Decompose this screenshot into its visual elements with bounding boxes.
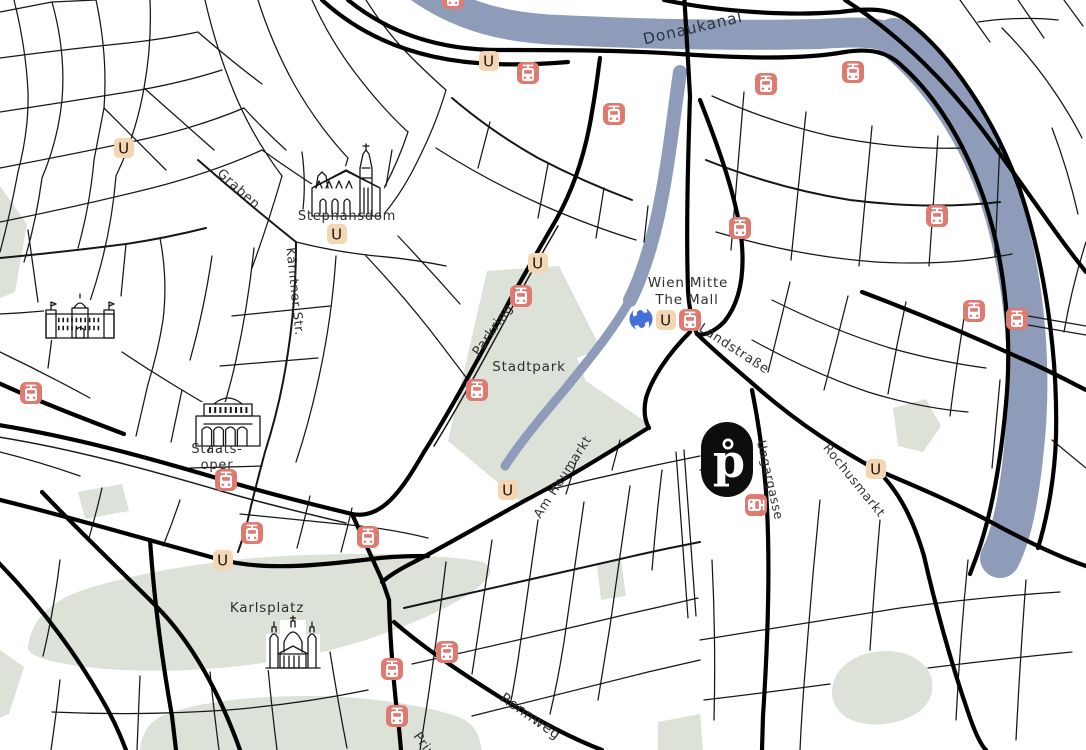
street <box>398 236 460 304</box>
hotel-pin[interactable]: p <box>701 422 753 497</box>
street <box>312 0 408 132</box>
street <box>144 88 214 150</box>
tram-stop-marker[interactable] <box>215 469 237 491</box>
place-label: Stadtpark <box>492 359 566 375</box>
street <box>706 160 1000 206</box>
street <box>510 520 538 706</box>
street <box>163 500 180 546</box>
ubahn-station-marker[interactable]: U <box>114 138 134 158</box>
street <box>0 70 222 112</box>
street <box>94 0 105 160</box>
vienna-map[interactable]: DonaukanalGrabenKärntner Str.Stephansdom… <box>0 0 1086 750</box>
street <box>1052 128 1078 214</box>
street <box>472 540 492 674</box>
street <box>244 108 286 150</box>
staatsoper-building <box>196 398 260 446</box>
ubahn-station-marker[interactable]: U <box>479 51 499 71</box>
tram-stop-marker[interactable] <box>926 205 948 227</box>
street <box>538 164 548 218</box>
street <box>791 112 806 260</box>
park-patch <box>597 560 626 600</box>
ubahn-station-marker[interactable]: U <box>528 253 548 273</box>
tram-stop-marker[interactable] <box>510 285 532 307</box>
tram-stop-marker[interactable] <box>20 382 42 404</box>
tram-stop-marker[interactable] <box>963 300 985 322</box>
park-patch <box>0 186 27 298</box>
tram-stop-marker[interactable] <box>755 73 777 95</box>
street <box>652 470 662 570</box>
place-label: The Mall <box>654 292 718 308</box>
tram-stop-marker[interactable] <box>241 522 263 544</box>
street <box>220 358 318 366</box>
street <box>704 684 830 700</box>
street <box>121 244 126 296</box>
street <box>0 452 80 476</box>
ubahn-letter: U <box>483 53 495 71</box>
tram-stop-marker[interactable] <box>729 217 751 239</box>
ubahn-letter: U <box>502 482 514 500</box>
ubahn-letter: U <box>532 255 544 273</box>
ubahn-station-marker[interactable]: U <box>327 224 347 244</box>
tram-stop-marker[interactable] <box>381 658 403 680</box>
main-road <box>645 332 690 428</box>
park-patch <box>893 399 941 452</box>
street <box>252 176 282 268</box>
place-label: Karlsplatz <box>230 600 304 616</box>
street <box>171 390 182 442</box>
street <box>978 18 1058 22</box>
ubahn-station-marker[interactable]: U <box>498 480 518 500</box>
street <box>929 136 938 266</box>
street <box>28 230 38 302</box>
sbahn-station-marker[interactable] <box>630 308 653 331</box>
street <box>596 188 604 238</box>
street <box>386 150 392 186</box>
street <box>772 300 986 368</box>
street <box>262 150 318 188</box>
street <box>258 0 348 158</box>
street <box>148 238 165 384</box>
tram-stop-marker[interactable] <box>842 61 864 83</box>
place-label: Stephansdom <box>298 209 396 224</box>
street <box>190 256 212 360</box>
street <box>198 32 262 84</box>
place-label: Staats- <box>191 442 242 457</box>
sbahn-icon <box>630 308 653 331</box>
street-label: Graben <box>214 166 263 212</box>
street <box>870 520 880 650</box>
street <box>700 592 1060 640</box>
street <box>238 242 296 552</box>
street <box>859 126 872 266</box>
tram-stop-marker[interactable] <box>517 62 539 84</box>
street <box>24 2 63 262</box>
park-patch <box>0 650 24 718</box>
ubahn-letter: U <box>660 312 672 330</box>
tram-stop-marker[interactable] <box>1006 308 1028 330</box>
street <box>80 0 150 328</box>
street-label: Kärntner Str. <box>283 247 307 337</box>
river-donaukanal-bend <box>894 38 1027 558</box>
street <box>436 148 636 240</box>
ring-rail-line <box>0 436 346 523</box>
palace-building <box>44 294 116 340</box>
tram-stop-marker[interactable] <box>357 526 379 548</box>
street <box>800 500 820 750</box>
park-patch <box>832 651 932 724</box>
place-label: Wien Mitte <box>648 275 728 291</box>
street-label: Rochusmarkt <box>820 440 889 520</box>
tram-stop-marker[interactable] <box>679 309 701 331</box>
ubahn-letter: U <box>118 140 130 158</box>
street <box>51 680 60 750</box>
street <box>384 90 446 214</box>
street <box>712 96 962 148</box>
street <box>824 296 848 390</box>
main-road <box>0 380 124 434</box>
ubahn-letter: U <box>331 226 343 244</box>
street <box>1002 28 1082 138</box>
map-canvas[interactable]: DonaukanalGrabenKärntner Str.Stephansdom… <box>0 0 1086 750</box>
ubahn-station-marker[interactable]: U <box>866 459 886 479</box>
hotel-pin-letter: p <box>713 434 745 488</box>
street <box>1016 580 1026 740</box>
tram-stop-marker[interactable] <box>442 0 464 9</box>
park-patch <box>78 484 129 519</box>
ubahn-letter: U <box>217 552 229 570</box>
karlskirche-building <box>266 616 320 670</box>
street <box>302 152 304 209</box>
tram-icon <box>447 0 459 6</box>
ubahn-station-marker[interactable]: U <box>213 550 233 570</box>
street <box>1064 0 1083 26</box>
tram-stop-marker[interactable] <box>466 379 488 401</box>
street <box>136 384 148 436</box>
street <box>0 32 198 58</box>
ubahn-letter: U <box>870 461 882 479</box>
tram-stop-marker[interactable] <box>603 103 625 125</box>
street <box>205 0 282 176</box>
tram-stop-marker[interactable] <box>436 641 458 663</box>
street <box>478 122 490 168</box>
river-wienfluss-upper <box>630 72 680 300</box>
street <box>716 232 1012 263</box>
street <box>366 256 468 380</box>
ubahn-station-marker[interactable]: U <box>656 310 676 330</box>
street <box>752 340 968 412</box>
street <box>296 242 446 266</box>
park-patch <box>658 714 703 750</box>
tram-stop-marker[interactable] <box>386 705 408 727</box>
street <box>712 560 715 720</box>
street <box>104 108 166 170</box>
street <box>240 514 428 538</box>
tram-stop-marker[interactable] <box>745 494 767 516</box>
street <box>550 502 584 714</box>
